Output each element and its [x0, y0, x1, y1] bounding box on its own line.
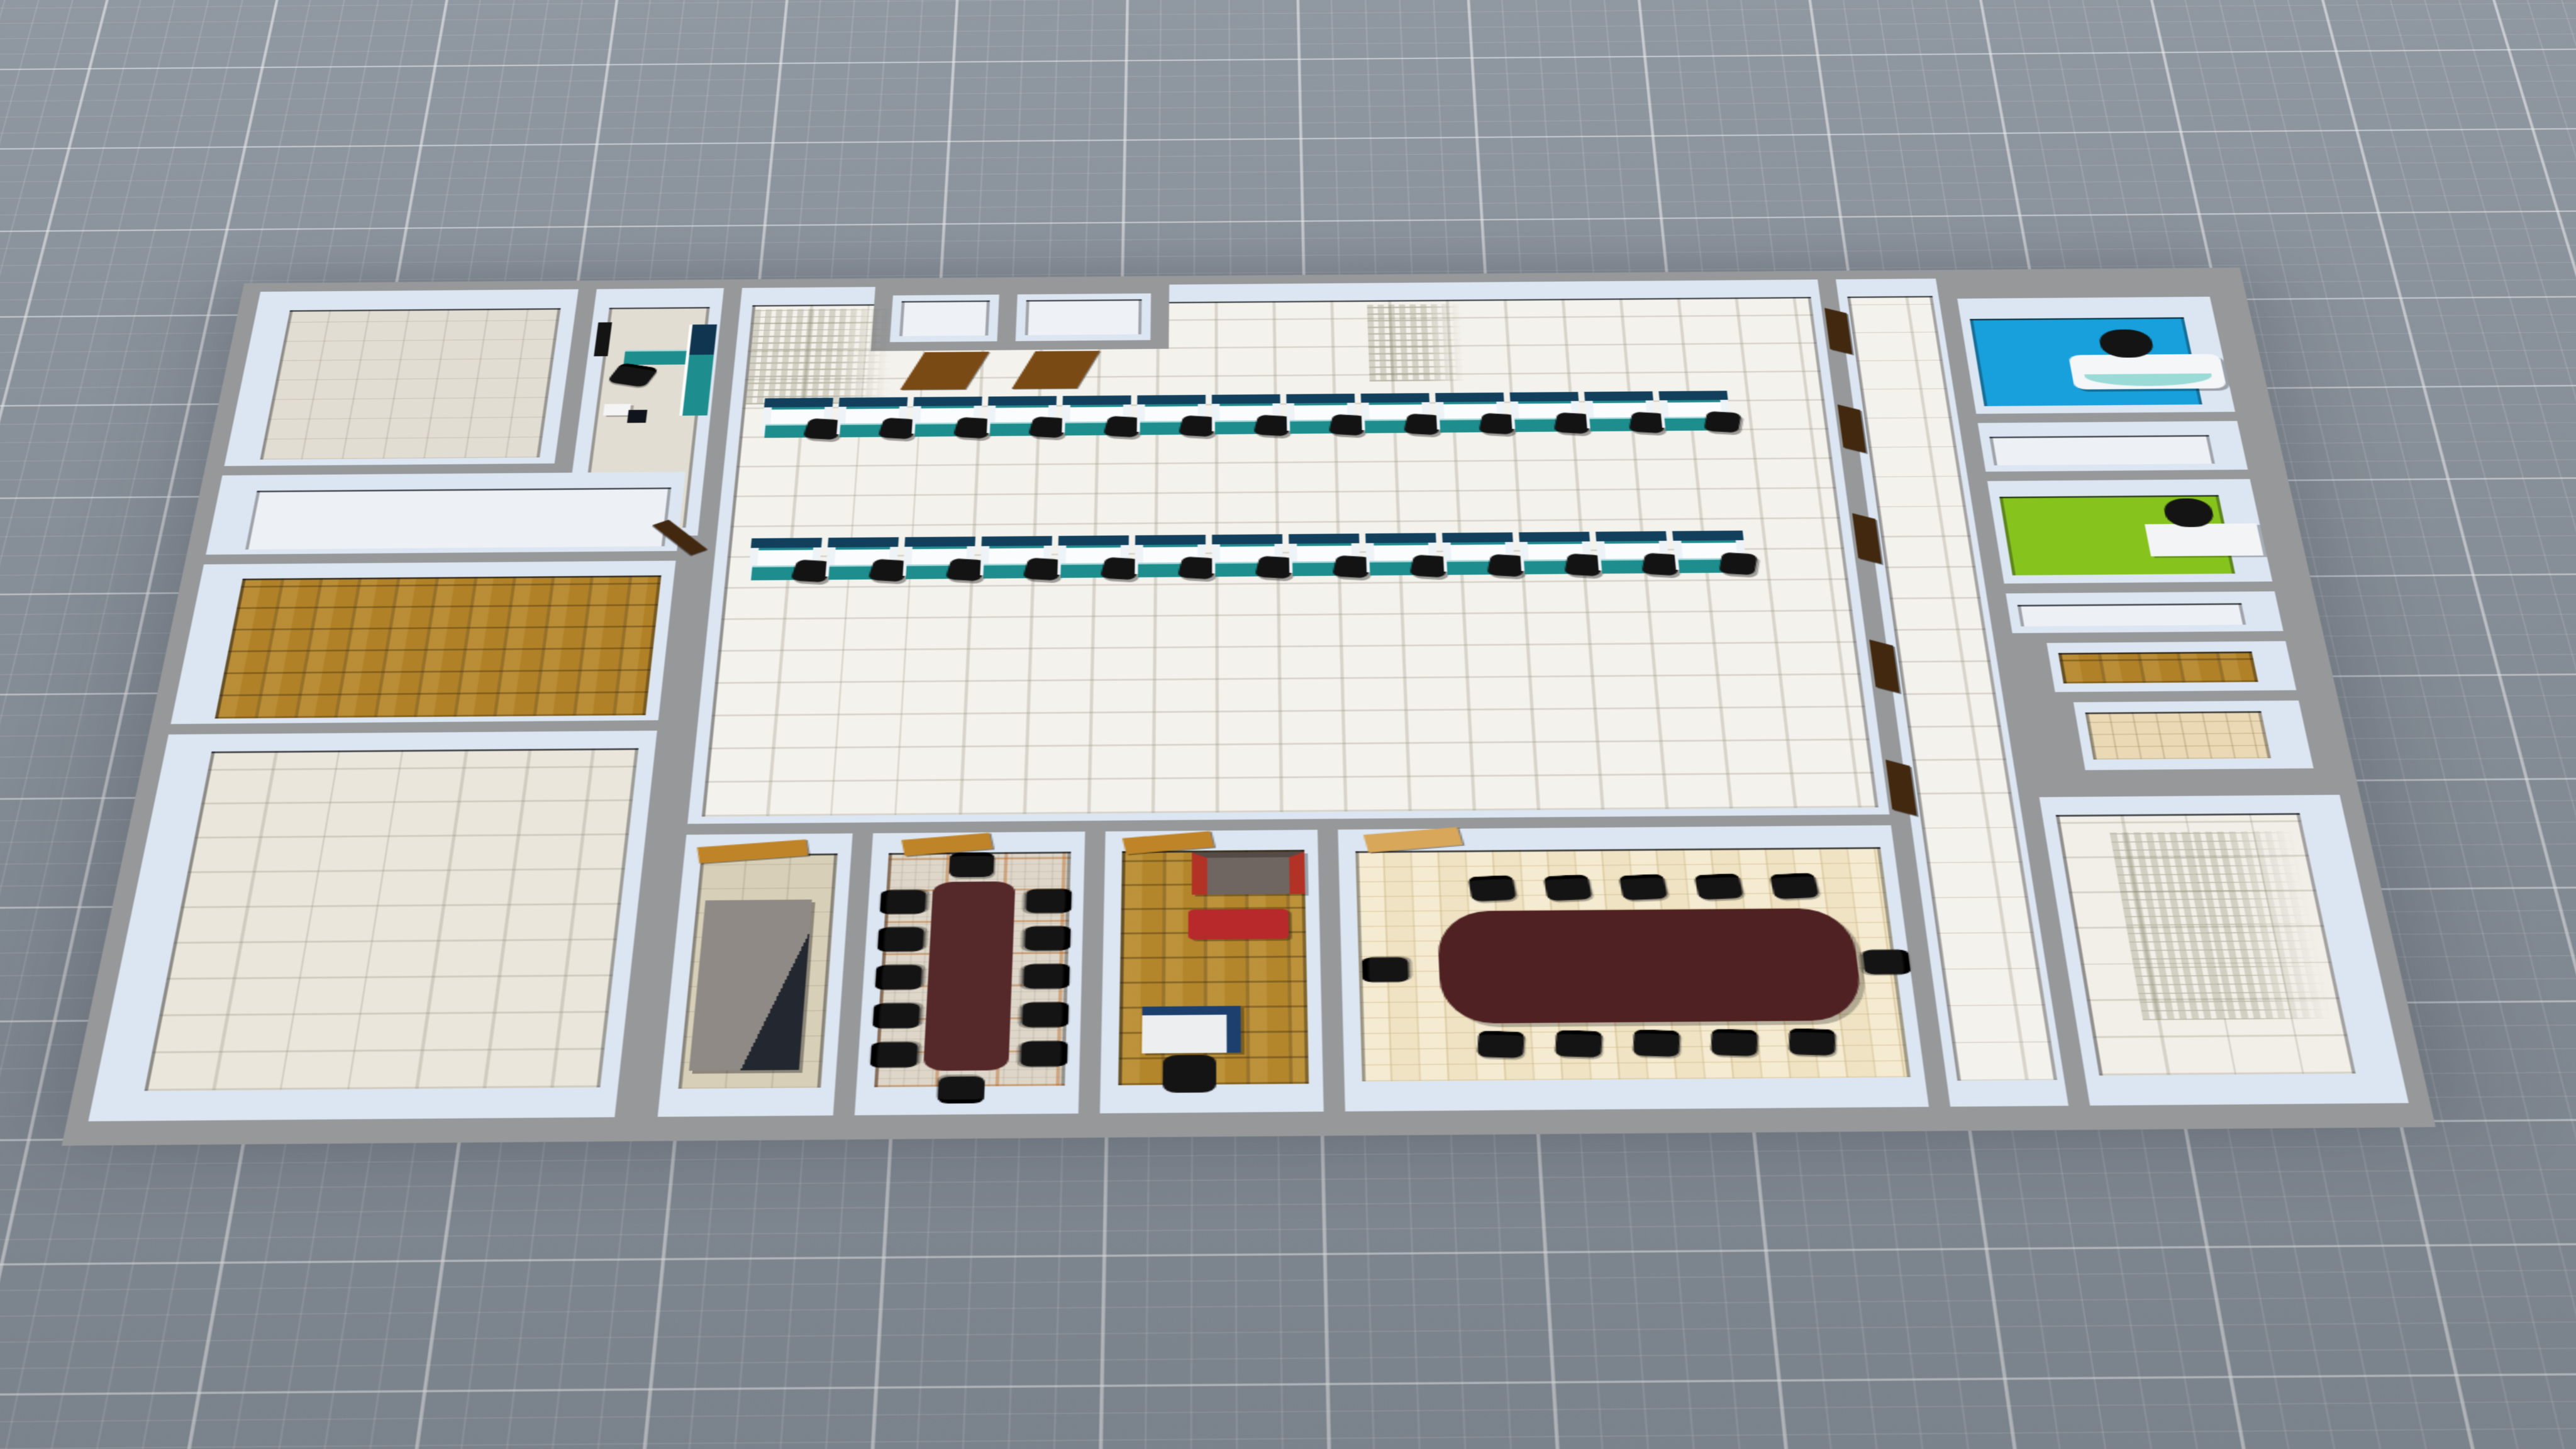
workstation-cubicle	[1519, 532, 1593, 583]
workstation-cubicle	[1057, 535, 1129, 586]
workstation-cubicle	[760, 397, 833, 445]
closet-left	[890, 294, 999, 342]
cubicle-chair	[1719, 552, 1758, 575]
workstation-cubicle	[979, 536, 1052, 587]
lounge-desk	[1141, 1006, 1241, 1053]
workstation-cubicle	[1289, 533, 1360, 584]
office-chair	[1477, 1030, 1524, 1058]
room-left-wood-tiles	[170, 560, 675, 724]
workstation-cubicle	[902, 536, 975, 587]
workstation-cubicle	[1136, 395, 1206, 443]
cubicle-back	[1135, 535, 1206, 547]
cubicle-back	[1286, 394, 1355, 406]
office-chair	[1024, 926, 1072, 950]
conference-table	[1436, 908, 1864, 1024]
office-chair	[1361, 957, 1409, 982]
world-plane	[0, 0, 2576, 1449]
cubicle-back	[1442, 532, 1513, 545]
cubicle-back	[838, 397, 908, 409]
room-top-left	[225, 289, 579, 466]
room-left-white	[206, 472, 686, 555]
cubicle-back	[1212, 534, 1282, 547]
cubicle-back	[1361, 393, 1430, 405]
hall-floor-annotations-right	[1367, 304, 1466, 381]
office-chair	[1020, 1041, 1069, 1067]
cubicle-back	[988, 396, 1057, 408]
floorplan-3d-viewport[interactable]	[0, 0, 2576, 1449]
cubicle-back	[1584, 391, 1653, 403]
office-black-box	[627, 410, 647, 423]
room-bottom-left-large	[88, 731, 657, 1121]
cubicle-back	[1510, 392, 1579, 404]
green-room-desk	[2145, 523, 2263, 557]
building	[62, 267, 2436, 1145]
office-chair	[949, 852, 994, 877]
cubicle-back	[828, 537, 899, 550]
office-chair	[1021, 1002, 1070, 1028]
office-chair	[1025, 889, 1072, 913]
cubicle-back	[1435, 392, 1504, 404]
office-chair	[1711, 1028, 1757, 1056]
office-chair	[938, 1076, 985, 1103]
office-chair	[1633, 1029, 1680, 1057]
narrow-wood-room	[2046, 641, 2296, 692]
office-chair	[869, 1042, 918, 1068]
cubicle-back	[764, 397, 833, 409]
workstation-cubicle	[1286, 394, 1356, 441]
workstation-cubicle	[824, 537, 899, 588]
office-chair	[1769, 872, 1819, 899]
workstation-cubicle	[1435, 392, 1506, 440]
workstation-cubicle	[1584, 391, 1657, 439]
workstation-cubicle	[1596, 531, 1670, 582]
workstation-cubicle	[1212, 394, 1281, 442]
meeting-table	[923, 881, 1016, 1070]
office-chair	[1023, 963, 1070, 989]
cubicle-back	[904, 536, 975, 549]
workstation-cubicle	[911, 397, 982, 445]
cubicle-back	[1519, 532, 1590, 545]
cubicle-back	[1672, 531, 1744, 543]
workstation-cubicle	[747, 538, 822, 589]
reception-desk-aqua-band	[2084, 374, 2214, 387]
office-chair	[877, 927, 925, 952]
right-white-room-2	[2006, 591, 2283, 633]
cubicle-back	[1658, 391, 1728, 402]
cubicle-back	[913, 397, 982, 409]
office-chair	[1862, 950, 1912, 975]
coffee-table	[1188, 909, 1289, 940]
cubicle-back	[750, 538, 822, 550]
storage-cabinet	[689, 899, 812, 1070]
reception-desk	[2068, 354, 2227, 390]
cubicle-back	[1596, 531, 1667, 544]
office-chair	[874, 965, 923, 990]
workstation-cubicle	[1361, 393, 1431, 441]
workstation-cubicle	[1365, 533, 1438, 584]
cubicle-back	[1212, 394, 1280, 406]
workstation-cubicle	[1062, 396, 1131, 443]
office-chair	[872, 1003, 921, 1029]
sofa	[1192, 852, 1305, 895]
office-chair	[1555, 1030, 1602, 1057]
office-chair	[1694, 873, 1744, 900]
workstation-cubicle	[836, 397, 908, 445]
office-desk-return	[623, 350, 687, 365]
office-chair	[1468, 875, 1517, 902]
office-chair	[1618, 874, 1668, 901]
workstation-cubicle	[986, 396, 1057, 444]
cubicle-back	[1137, 395, 1206, 407]
office-chair	[879, 890, 927, 914]
workstation-cubicle	[1510, 392, 1582, 440]
hall-floor-annotations-left	[746, 308, 896, 404]
camera-tilt	[0, 0, 2576, 1449]
beige-tile-room	[2074, 701, 2314, 770]
cubicle-back	[1365, 533, 1436, 545]
workstation-cubicle	[1672, 531, 1748, 582]
office-white-box	[603, 404, 631, 415]
office-chair	[1543, 874, 1593, 901]
cubicle-back	[1058, 535, 1129, 548]
cubicle-back	[981, 536, 1052, 548]
closet-right	[1016, 293, 1151, 341]
workstation-cubicle	[1135, 535, 1206, 586]
workstation-cubicle	[1658, 391, 1732, 438]
cubicle-back	[1062, 396, 1131, 408]
workstation-cubicle	[1212, 534, 1283, 585]
cubicle-back	[1289, 533, 1359, 546]
lounge-chair	[1163, 1055, 1216, 1093]
workstation-cubicle	[1442, 532, 1516, 583]
cubicle-chair	[1704, 411, 1741, 433]
right-white-room-1	[1978, 421, 2248, 472]
office-chair	[1789, 1028, 1835, 1055]
